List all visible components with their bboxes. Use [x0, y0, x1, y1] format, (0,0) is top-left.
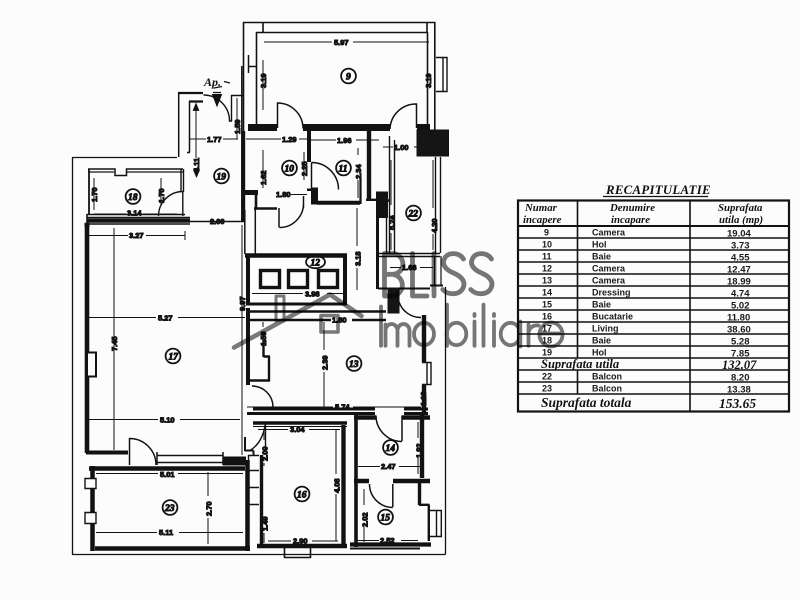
svg-text:10: 10 [542, 240, 552, 250]
svg-text:11: 11 [339, 164, 348, 174]
svg-text:9: 9 [544, 228, 549, 238]
svg-text:Camera: Camera [592, 264, 626, 274]
svg-text:Dressing: Dressing [592, 288, 631, 298]
svg-text:1.62: 1.62 [259, 170, 268, 185]
svg-text:5.27: 5.27 [158, 314, 173, 323]
svg-text:14: 14 [386, 444, 396, 454]
svg-text:132.07: 132.07 [722, 358, 757, 372]
svg-text:1.49: 1.49 [261, 516, 270, 531]
svg-text:2.00: 2.00 [210, 217, 225, 226]
svg-text:4.74: 4.74 [731, 289, 750, 300]
svg-text:Hol: Hol [592, 240, 607, 250]
svg-text:Living: Living [592, 324, 619, 334]
svg-text:9: 9 [346, 72, 351, 82]
svg-text:14: 14 [542, 288, 552, 298]
svg-text:12: 12 [311, 258, 321, 268]
svg-text:4.55: 4.55 [731, 253, 750, 264]
svg-text:3.27: 3.27 [129, 231, 144, 240]
svg-text:23: 23 [164, 504, 175, 514]
svg-text:2.47: 2.47 [381, 462, 396, 471]
svg-text:12.47: 12.47 [727, 265, 751, 276]
svg-text:1.96: 1.96 [337, 136, 352, 145]
svg-text:3.98: 3.98 [305, 290, 320, 299]
svg-text:22: 22 [408, 209, 419, 219]
svg-text:2.34: 2.34 [354, 164, 363, 179]
svg-text:13: 13 [542, 276, 552, 286]
svg-text:7.45: 7.45 [110, 336, 119, 351]
svg-text:Balcon: Balcon [592, 384, 622, 394]
svg-text:2.02: 2.02 [361, 512, 370, 527]
svg-text:3.19: 3.19 [259, 73, 268, 88]
svg-text:11: 11 [542, 252, 552, 262]
svg-text:Balcon: Balcon [592, 372, 622, 382]
svg-text:19: 19 [542, 348, 552, 358]
svg-text:2.52: 2.52 [380, 536, 395, 545]
svg-text:3.04: 3.04 [290, 425, 305, 434]
svg-text:5.11: 5.11 [159, 528, 173, 537]
svg-text:16: 16 [542, 312, 552, 322]
svg-text:3.18: 3.18 [354, 251, 363, 266]
svg-text:1.77: 1.77 [207, 135, 222, 144]
svg-text:Denumire: Denumire [609, 202, 655, 214]
svg-text:2.90: 2.90 [293, 537, 308, 546]
svg-text:Suprafata: Suprafata [718, 202, 763, 214]
svg-text:2.70: 2.70 [205, 501, 214, 516]
svg-text:1.92: 1.92 [415, 443, 424, 458]
svg-text:153.65: 153.65 [719, 396, 756, 411]
svg-text:12: 12 [542, 264, 552, 274]
svg-text:1.70: 1.70 [157, 188, 166, 203]
svg-text:19.04: 19.04 [727, 229, 751, 240]
svg-text:1.59: 1.59 [233, 119, 242, 134]
svg-text:2.25: 2.25 [300, 161, 309, 176]
svg-text:13: 13 [349, 360, 359, 370]
svg-text:5.02: 5.02 [731, 301, 750, 312]
svg-text:1.80: 1.80 [276, 190, 291, 199]
svg-text:1.00: 1.00 [394, 143, 409, 152]
svg-text:9.97: 9.97 [238, 296, 247, 311]
svg-text:38.60: 38.60 [727, 325, 751, 336]
svg-text:8.20: 8.20 [731, 373, 750, 384]
svg-text:3.14: 3.14 [127, 209, 142, 218]
svg-text:Bucatarie: Bucatarie [592, 312, 633, 322]
svg-text:4.20: 4.20 [430, 218, 439, 233]
svg-text:2.39: 2.39 [321, 355, 330, 370]
svg-text:incapere: incapere [523, 214, 562, 226]
svg-text:22: 22 [542, 372, 552, 382]
svg-text:2.00: 2.00 [261, 446, 270, 461]
svg-text:1.29: 1.29 [282, 135, 297, 144]
svg-text:5.97: 5.97 [334, 38, 349, 47]
svg-text:Baie: Baie [592, 252, 611, 262]
svg-text:Hol: Hol [592, 348, 607, 358]
svg-text:utila (mp): utila (mp) [719, 214, 763, 226]
svg-text:10: 10 [285, 164, 295, 174]
svg-text:17: 17 [169, 352, 180, 362]
svg-text:15: 15 [381, 513, 391, 523]
svg-text:Baie: Baie [592, 300, 611, 310]
svg-text:4.08: 4.08 [333, 478, 342, 493]
svg-text:Numar: Numar [524, 202, 558, 214]
svg-text:18: 18 [128, 193, 138, 203]
svg-text:11.80: 11.80 [727, 313, 750, 324]
svg-text:incapare: incapare [611, 214, 650, 226]
svg-text:16: 16 [297, 490, 307, 500]
svg-text:Baie: Baie [592, 336, 611, 346]
svg-text:5.74: 5.74 [335, 403, 350, 412]
svg-text:RECAPITULATIE: RECAPITULATIE [605, 183, 711, 197]
svg-text:18.99: 18.99 [727, 277, 751, 288]
svg-text:5.10: 5.10 [160, 416, 175, 425]
svg-text:5.24: 5.24 [388, 215, 397, 230]
svg-text:23: 23 [542, 384, 552, 394]
svg-text:13.38: 13.38 [727, 385, 751, 396]
svg-text:19: 19 [217, 172, 227, 182]
svg-text:5.28: 5.28 [731, 337, 750, 348]
svg-text:1.70: 1.70 [90, 187, 99, 202]
svg-text:Suprafata totala: Suprafata totala [541, 395, 632, 410]
svg-text:3.19: 3.19 [424, 73, 433, 88]
svg-text:15: 15 [542, 300, 552, 310]
svg-text:Suprafata utila: Suprafata utila [541, 357, 619, 371]
svg-text:5.01: 5.01 [160, 470, 175, 479]
svg-text:1.19: 1.19 [419, 391, 428, 406]
svg-text:Camera: Camera [592, 228, 626, 238]
svg-text:3.73: 3.73 [731, 241, 750, 252]
svg-text:Camera: Camera [592, 276, 626, 286]
